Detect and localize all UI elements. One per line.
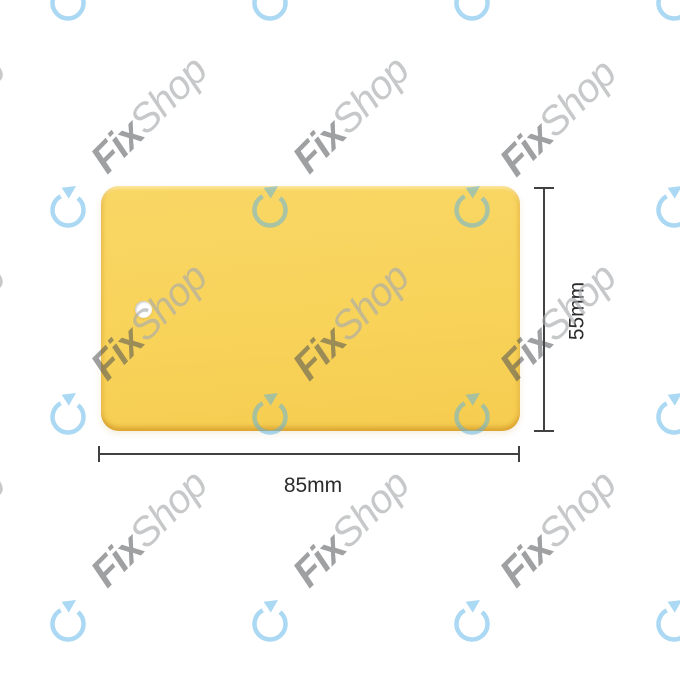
height-dimension-line [543,188,545,432]
brand-shop: Shop [530,462,624,556]
watermark-brand: FixShop [493,53,623,183]
rotate-arrow-icon [45,0,91,23]
height-dimension-tick-top [534,187,554,189]
product-card [101,186,520,431]
width-dimension-tick-left [98,446,100,462]
watermark-brand: FixShop [0,257,12,387]
rotate-arrow-icon [651,184,680,230]
brand-fix: Fix [82,526,152,596]
height-dimension-label: 55mm [567,282,588,340]
rotate-arrow-icon [45,184,91,230]
rotate-arrow-icon [651,391,680,437]
rotate-arrow-icon [651,598,680,644]
watermark-brand: FixShop [84,671,214,680]
brand-fix: Fix [491,115,561,185]
rotate-arrow-icon [247,598,293,644]
watermark-brand: FixShop [84,50,214,180]
width-dimension-tick-right [518,446,520,462]
watermark-brand: FixShop [493,671,623,680]
watermark-brand: FixShop [493,464,623,594]
brand-shop: Shop [530,669,624,680]
watermark-brand: FixShop [0,671,12,680]
rotate-arrow-icon [449,598,495,644]
watermark-brand: FixShop [0,464,12,594]
brand-shop: Shop [0,462,14,556]
rotate-arrow-icon [247,0,293,23]
rotate-arrow-icon [651,0,680,23]
width-dimension-label: 85mm [284,475,342,496]
brand-shop: Shop [323,48,417,142]
product-image: 85mm 55mm FixShop FixSho [0,0,680,680]
brand-shop: Shop [0,255,14,349]
width-dimension-line [99,453,519,455]
watermark-brand: FixShop [286,50,416,180]
watermark-brand: FixShop [84,464,214,594]
brand-fix: Fix [491,526,561,596]
rotate-arrow-icon [45,391,91,437]
brand-fix: Fix [284,112,354,182]
brand-fix: Fix [82,112,152,182]
height-dimension-tick-bottom [534,430,554,432]
hanging-hole [135,301,152,318]
rotate-arrow-icon [449,0,495,23]
brand-fix: Fix [284,526,354,596]
brand-shop: Shop [0,669,14,680]
brand-shop: Shop [323,669,417,680]
brand-shop: Shop [121,48,215,142]
brand-shop: Shop [121,669,215,680]
brand-shop: Shop [530,51,624,145]
rotate-arrow-icon [45,598,91,644]
brand-shop: Shop [121,462,215,556]
brand-shop: Shop [0,48,14,142]
watermark-brand: FixShop [0,50,12,180]
watermark-brand: FixShop [286,671,416,680]
